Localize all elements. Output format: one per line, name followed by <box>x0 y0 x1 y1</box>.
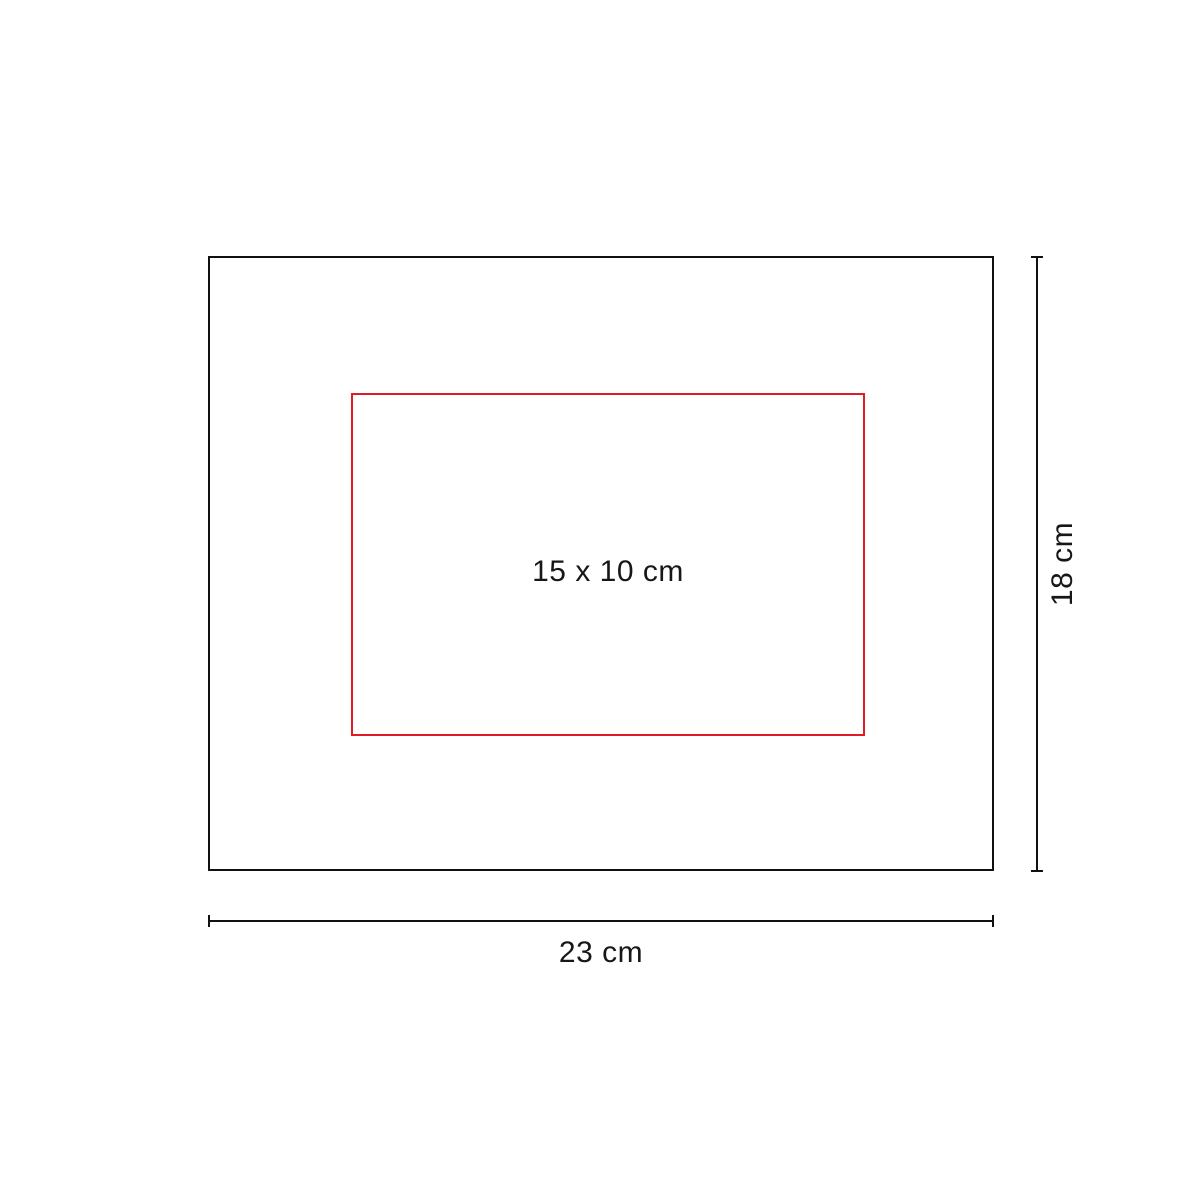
width-dimension-line <box>208 920 994 922</box>
height-dimension-label: 18 cm <box>1046 522 1080 606</box>
dimension-tick-right <box>992 915 994 927</box>
dimension-tick-top <box>1031 256 1043 258</box>
height-dimension-label-box: 18 cm <box>1003 504 1123 624</box>
print-area-label: 15 x 10 cm <box>532 557 684 587</box>
diagram-canvas: 15 x 10 cm 23 cm 18 cm <box>0 0 1200 1200</box>
print-area-rect: 15 x 10 cm <box>351 393 865 736</box>
dimension-tick-left <box>208 915 210 927</box>
width-dimension-label: 23 cm <box>208 936 994 970</box>
dimension-tick-bottom <box>1031 870 1043 872</box>
